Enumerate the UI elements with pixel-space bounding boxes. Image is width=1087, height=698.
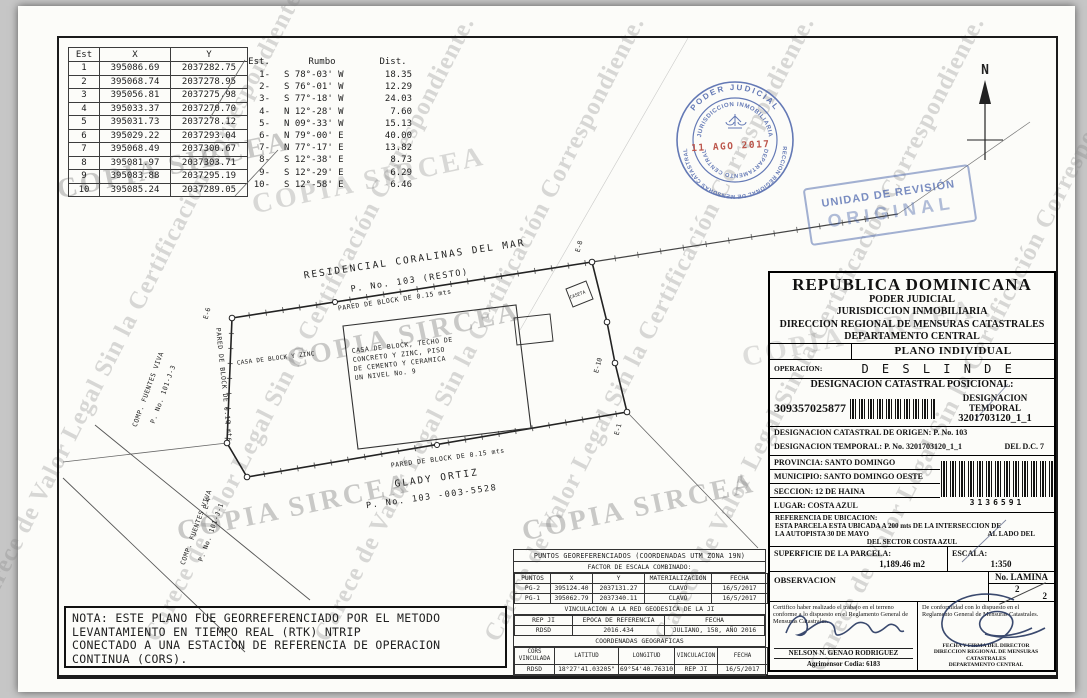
reference-label: REFERENCIA DE UBICACION: xyxy=(775,514,1049,522)
text-line: NOTA: ESTE PLANO FUE GEORREFERENCIADO PO… xyxy=(72,612,499,626)
scales-icon xyxy=(726,114,746,128)
positional-number: 309357025877 xyxy=(770,401,850,416)
temporal-line: DESIGNACION TEMPORAL: P. No. 3201703120_… xyxy=(774,442,962,454)
neighbor-label-fuentes-upper: COMP. FUENTES VIVA P. No. 101-J-3 xyxy=(131,351,178,428)
house-label-zinc: CASA DE BLOCK Y ZINC xyxy=(237,350,316,366)
lamina-bottom-value: 2 xyxy=(1043,591,1048,601)
barcode-positional xyxy=(850,399,936,419)
operation-label: OPERACION: xyxy=(770,364,822,373)
table-cell: 16/5/2017 xyxy=(712,584,768,594)
table-cell: 395124.40 xyxy=(551,584,593,594)
org-line: DIRECCION REGIONAL DE MENSURAS CATASTRAL… xyxy=(770,319,1054,331)
geo-subtitle: FACTOR DE ESCALA COMBINADO: xyxy=(514,562,765,573)
temporal-label: DESIGNACION TEMPORAL xyxy=(936,393,1054,413)
surveyor-cert-text: Certifico haber realizado el trabajo en … xyxy=(773,604,908,625)
barcode-lamina xyxy=(941,461,1053,497)
table-cell: REP JI xyxy=(675,665,718,675)
table-cell: RDSD xyxy=(515,626,573,636)
barcode-number: 3136591 xyxy=(970,498,1025,507)
edge-label-e6: E-6 xyxy=(202,307,213,320)
table-cell: JULIANO, 158, AÑO 2016 xyxy=(665,626,765,636)
vinc-table: REP JI EPOCA DE REFERENCIA FECHA RDSD201… xyxy=(514,615,765,636)
director-block: FECHA Y FIRMA DEL DIRECTOR DIRECCION REG… xyxy=(922,643,1050,668)
certification-row: Certifico haber realizado el trabajo en … xyxy=(770,601,1054,670)
neighbor-label-glady-parcel: P. No. 103 -003-5528 xyxy=(365,483,497,511)
table-cell: 395062.79 xyxy=(551,594,593,604)
area-value: 1,189.46 m2 xyxy=(879,559,925,569)
nota-box: NOTA: ESTE PLANO FUE GEORREFERENCIADO PO… xyxy=(64,606,507,668)
table-row: RDSD18°27'41.03205"69°54'40.76310REP JI1… xyxy=(515,665,768,675)
observation-label: OBSERVACION xyxy=(770,572,988,601)
caseta-label: CASETA xyxy=(569,289,587,300)
leader-line xyxy=(210,60,245,118)
temporal-designation: DESIGNACION TEMPORAL 3201703120_1_1 xyxy=(936,393,1054,424)
geo-points-table: PUNTOS X Y MATERIALIZACION FECHA PG-2395… xyxy=(514,573,768,604)
district-label: DEL D.C. 7 xyxy=(1004,442,1044,454)
scale-cell: ESCALA: 1:350 xyxy=(948,547,1054,572)
municipio-row: MUNICIPIO: SANTO DOMINGO OESTE xyxy=(770,470,940,484)
edge-label-e4: E-4 xyxy=(202,497,213,510)
table-cell: PG-2 xyxy=(515,584,551,594)
scanned-survey-plan: Carece de Valor Legal Sin la Certificaci… xyxy=(0,0,1087,698)
area-cell: SUPERFICIE DE LA PARCELA: 1,189.46 m2 xyxy=(770,547,948,572)
table-row: RDSD2016.434JULIANO, 158, AÑO 2016 xyxy=(515,626,765,636)
country-title: REPUBLICA DOMINICANA xyxy=(770,275,1054,294)
surveyor-name: NELSON N. GENAO RODRIGUEZ xyxy=(774,648,913,659)
table-cell: 69°54'40.76310 xyxy=(619,665,675,675)
reference-section: REFERENCIA DE UBICACION: ESTA PARCELA ES… xyxy=(770,512,1054,546)
neighbor-label-fuentes-lower: COMP. FUENTES VIVA P. No. 101-J-1 xyxy=(179,489,226,566)
designation-header: DESIGNACION CATASTRAL POSICIONAL: xyxy=(770,379,1054,392)
surveyor-code: Agrimensor Codia: 6183 xyxy=(774,661,913,668)
table-cell: RDSD xyxy=(515,665,555,675)
table-cell: PG-1 xyxy=(515,594,551,604)
text-line: LEVANTAMIENTO EN TIEMPO REAL (RTK) NTRIP xyxy=(72,626,499,640)
panel-header: REPUBLICA DOMINICANA PODER JUDICIAL JURI… xyxy=(770,273,1054,343)
table-cell: CLAVO xyxy=(645,584,712,594)
reference-line2: LA AUTOPISTA 30 DE MAYO AL LADO DEL xyxy=(775,530,1049,538)
reference-line1: ESTA PARCELA ESTA UBICADA A 200 mts DE L… xyxy=(775,522,1049,530)
lugar-row: LUGAR: COSTA AZUL xyxy=(770,498,940,511)
extension-line xyxy=(63,443,227,462)
plan-type-label: PLANO INDIVIDUAL xyxy=(852,344,1054,359)
north-arrow xyxy=(967,80,1003,160)
origin-line: DESIGNACION CATASTRAL DE ORIGEN: P. No. … xyxy=(770,427,1054,441)
georeference-table: PUNTOS GEOREFERENCIADOS (COORDENADAS UTM… xyxy=(513,549,766,676)
text-line: CONTINUA (CORS). xyxy=(72,653,499,667)
temporal-line-row: DESIGNACION TEMPORAL: P. No. 3201703120_… xyxy=(770,441,1054,455)
scale-label: ESCALA: xyxy=(948,547,1054,558)
coords-geo-table: CORS VINCULADA LATITUD LONGITUD VINCULAC… xyxy=(514,647,768,675)
reference-line3: DEL SECTOR COSTA AZUL xyxy=(775,538,1049,546)
observation-row: OBSERVACION No. LAMINA 2 2 xyxy=(770,571,1054,601)
lamina-values: 2 2 xyxy=(989,584,1054,601)
lamina-top-value: 2 xyxy=(1015,584,1020,594)
location-rows: PROVINCIA: SANTO DOMINGO MUNICIPIO: SANT… xyxy=(770,456,940,512)
table-row: PG-1395062.792037340.11CLAVO16/5/2017 xyxy=(515,594,768,604)
area-label: SUPERFICIE DE LA PARCELA: xyxy=(770,547,947,558)
org-line: JURISDICCION INMOBILIARIA xyxy=(770,306,1054,318)
text-line: CONECTADO A UNA ESTACION DE REFERENCIA D… xyxy=(72,639,499,653)
coords-geo-title: COORDENADAS GEOGRAFICAS xyxy=(514,636,765,647)
table-cell: 2037340.11 xyxy=(593,594,645,604)
edge-label-e1: E-1 xyxy=(613,423,624,436)
building-label: CASA DE BLOCK, TECHO DE CONCRETO Y ZINC,… xyxy=(351,336,453,382)
provincia-row: PROVINCIA: SANTO DOMINGO xyxy=(770,456,940,470)
operation-value: D E S L I N D E xyxy=(822,362,1054,376)
barcode-zone: 3136591 xyxy=(940,456,1054,512)
table-cell: 2037131.27 xyxy=(593,584,645,594)
extension-line xyxy=(627,412,758,548)
table-cell: 2016.434 xyxy=(573,626,665,636)
edge-label-e8: E-8 xyxy=(574,240,585,253)
table-row: PG-2395124.402037131.27CLAVO16/5/2017 xyxy=(515,584,768,594)
geo-title: PUNTOS GEOREFERENCIADOS (COORDENADAS UTM… xyxy=(514,550,765,562)
north-label: N xyxy=(981,63,989,78)
location-zone: PROVINCIA: SANTO DOMINGO MUNICIPIO: SANT… xyxy=(770,455,1054,512)
table-cell: 18°27'41.03205" xyxy=(555,665,619,675)
table-cell: 16/5/2017 xyxy=(712,594,768,604)
director-cert-cell: De conformidad con lo dispuesto en el Re… xyxy=(918,602,1054,670)
vinc-title: VINCULACION A LA RED GEODESICA DE LA JI xyxy=(514,604,765,615)
positional-code-row: 309357025877 DESIGNACION TEMPORAL 320170… xyxy=(770,391,1054,427)
area-scale-row: SUPERFICIE DE LA PARCELA: 1,189.46 m2 ES… xyxy=(770,546,1054,572)
org-line: DEPARTAMENTO CENTRAL xyxy=(770,331,1054,343)
plan-type-spacer xyxy=(770,344,852,359)
org-line: PODER JUDICIAL xyxy=(770,294,1054,306)
lamina-box: No. LAMINA 2 2 xyxy=(988,572,1054,601)
scale-value: 1:350 xyxy=(948,559,1054,569)
leader-line xyxy=(235,150,278,196)
stamp-date: 11 AGO 2017 xyxy=(691,139,771,154)
surveyor-cert-cell: Certifico haber realizado el trabajo en … xyxy=(770,602,918,670)
edge-label-e10: E-10 xyxy=(592,357,604,374)
temporal-number: 3201703120_1_1 xyxy=(936,413,1054,424)
director-cert-text: De conformidad con lo dispuesto en el Re… xyxy=(922,604,1038,618)
operation-row: OPERACION: D E S L I N D E xyxy=(770,360,1054,379)
plan-type-row: PLANO INDIVIDUAL xyxy=(770,343,1054,360)
title-block-panel: REPUBLICA DOMINICANA PODER JUDICIAL JURI… xyxy=(768,271,1056,672)
table-cell: 16/5/2017 xyxy=(718,665,768,675)
seccion-row: SECCION: 12 DE HAINA xyxy=(770,484,940,498)
table-cell: CLAVO xyxy=(645,594,712,604)
round-stamp-poder-judicial: PODER JUDICIAL DIRECCION REGIONAL DE MEN… xyxy=(660,70,810,210)
